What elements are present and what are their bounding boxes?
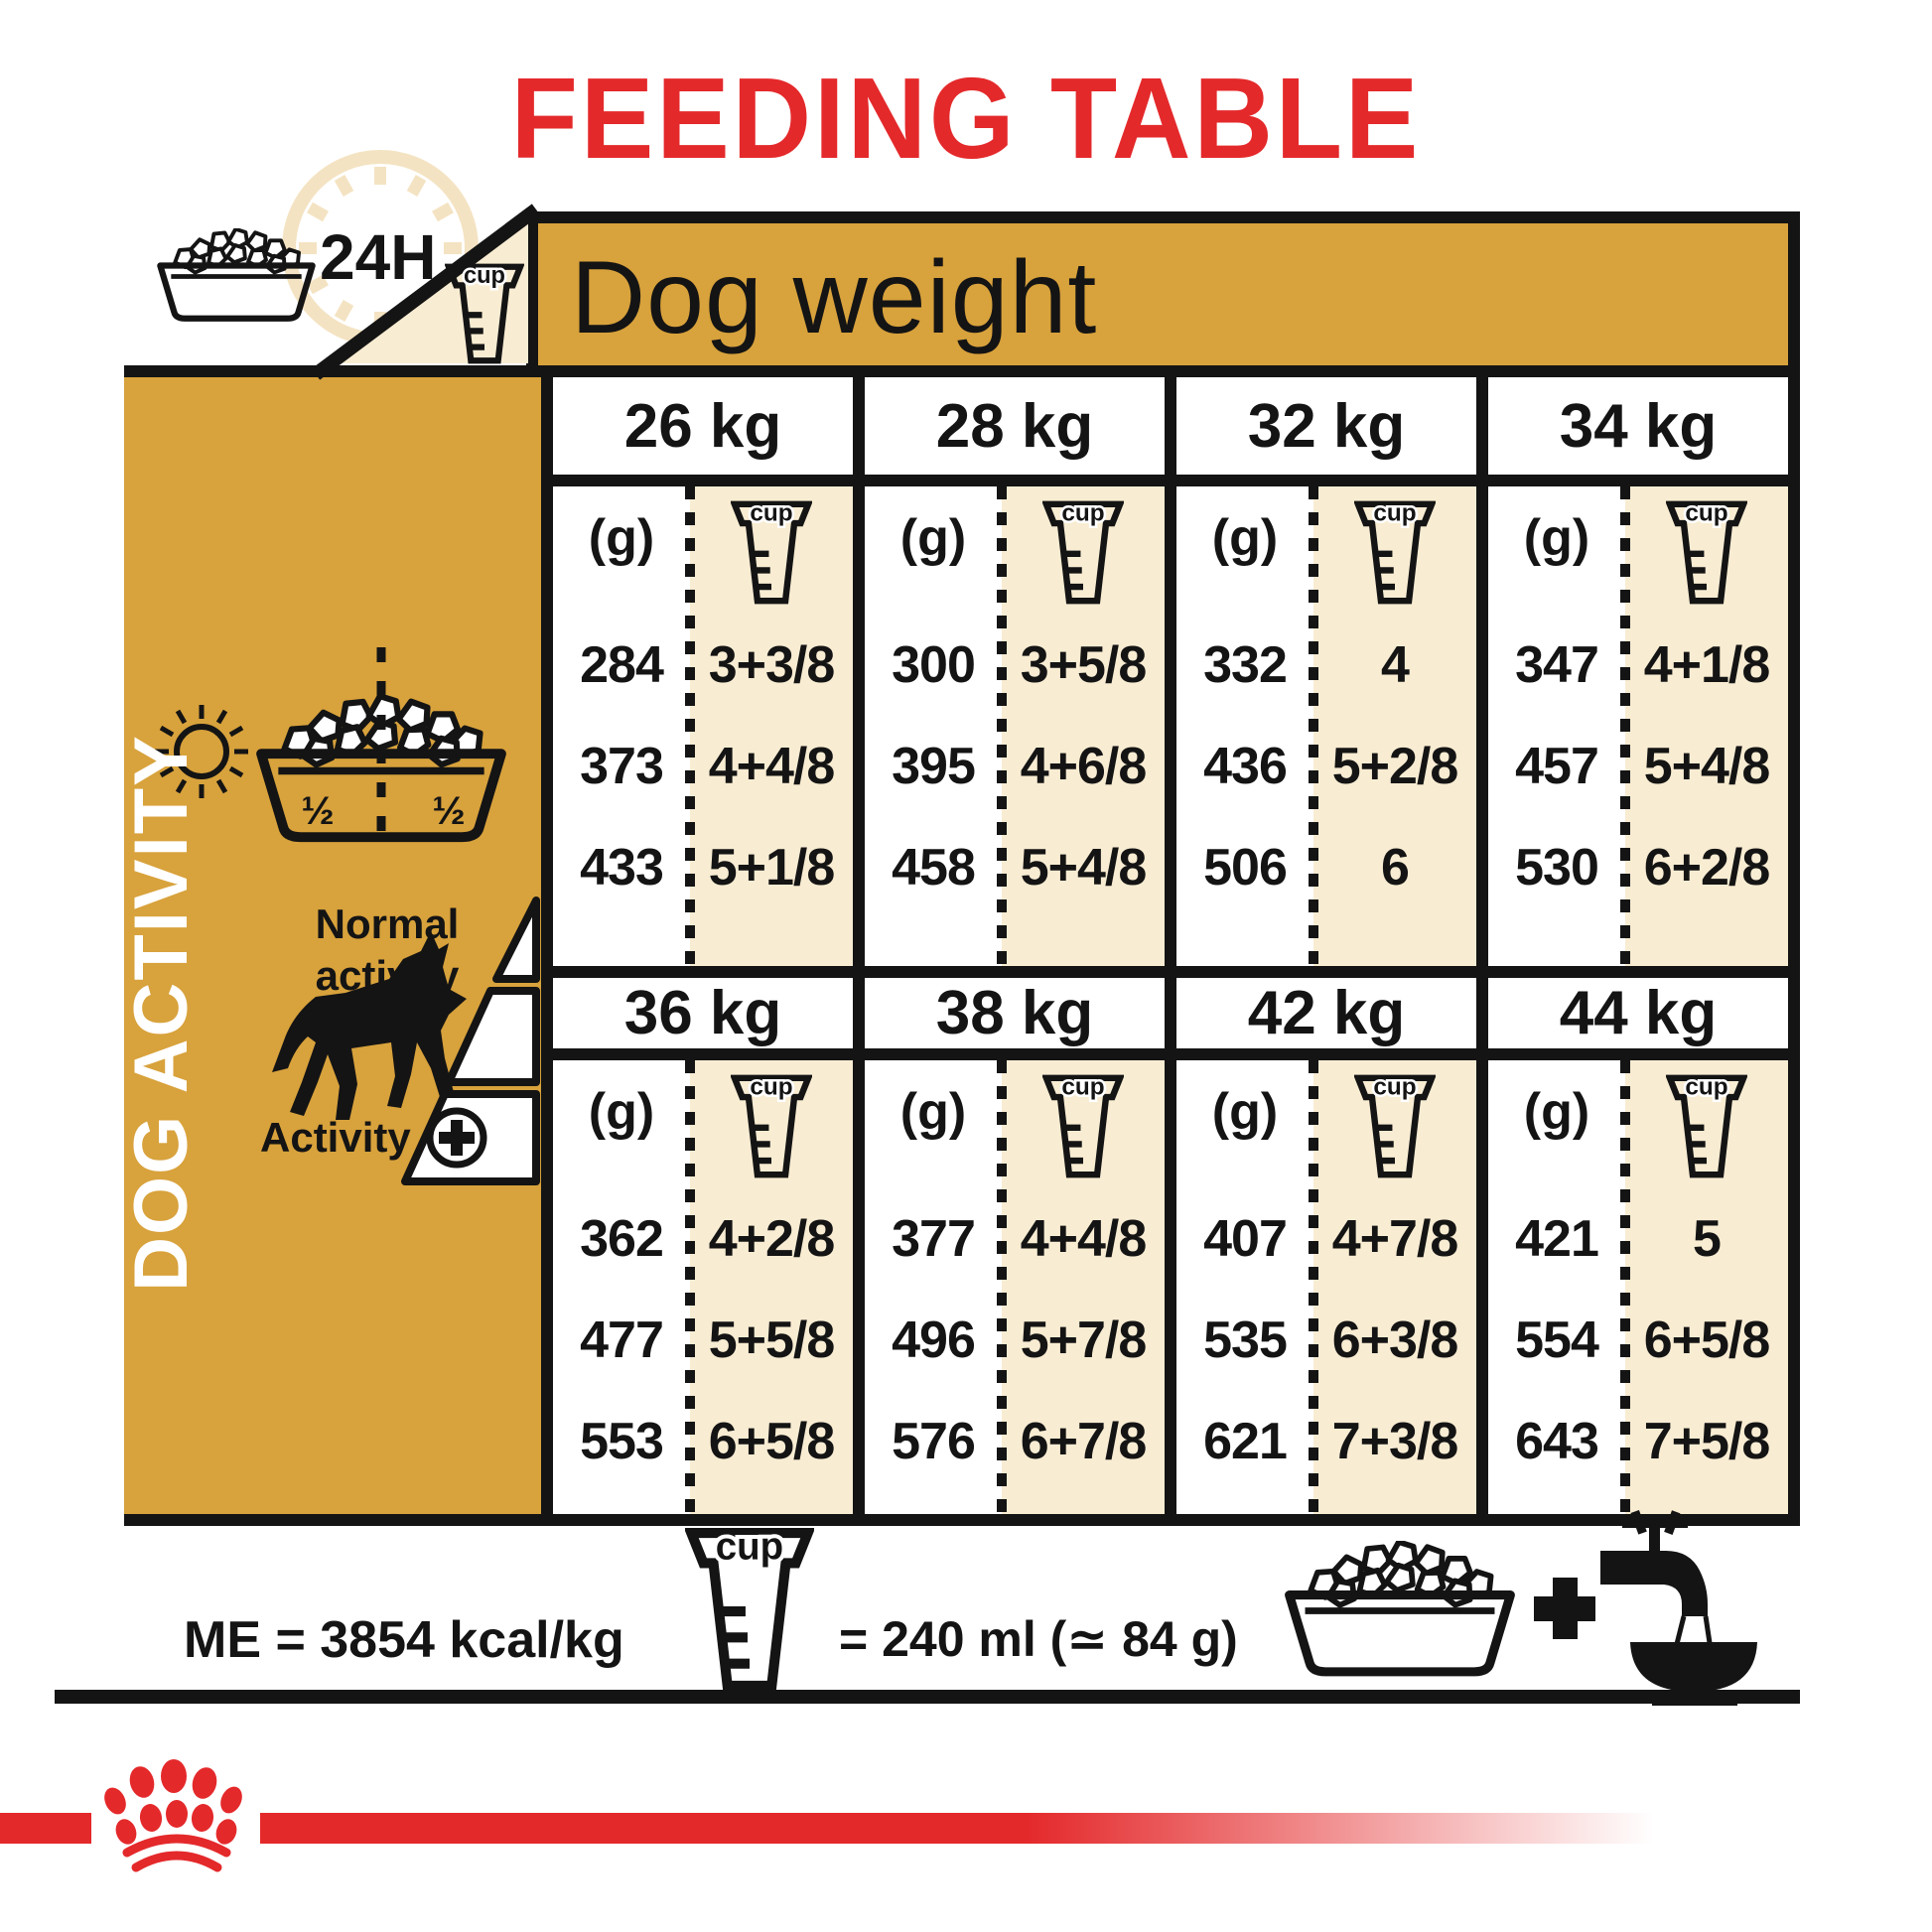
cup-icon: [1666, 500, 1747, 605]
cup-value: 3+5/8: [1002, 635, 1165, 695]
feeding-cell-32kg: (g) 332 4 436 5+2/8 506 6: [1176, 486, 1476, 966]
cup-icon: [1666, 1074, 1747, 1178]
brand-band-left: [0, 1813, 91, 1844]
feeding-cell-36kg: (g) 362 4+2/8 477 5+5/8 553 6+5/8: [553, 1060, 853, 1514]
cup-value: 5+7/8: [1002, 1311, 1165, 1370]
grams-value: 643: [1488, 1412, 1625, 1471]
weight-header-32kg: 32 kg: [1176, 377, 1476, 475]
grams-value: 300: [865, 635, 1002, 695]
cup-value: 6+3/8: [1313, 1311, 1476, 1370]
grams-value: 436: [1176, 737, 1313, 796]
half-portion-right: ½: [417, 787, 481, 835]
royal-canin-paw-logo: [100, 1759, 246, 1867]
activity-label: Activity: [260, 1110, 419, 1166]
grams-value: 621: [1176, 1412, 1313, 1471]
sidebar-bottom-border: [124, 1514, 541, 1526]
grams-value: 457: [1488, 737, 1625, 796]
grams-value: 407: [1176, 1209, 1313, 1269]
grams-value: 433: [553, 838, 690, 897]
cup-value: 5+1/8: [690, 838, 853, 897]
cup-equivalence-label: = 240 ml (≃ 84 g): [839, 1610, 1238, 1668]
grams-header: (g): [1488, 508, 1625, 568]
weight-header-26kg: 26 kg: [553, 377, 853, 475]
cup-value: 4+4/8: [1002, 1209, 1165, 1269]
cup-icon: [731, 1074, 812, 1178]
grams-value: 576: [865, 1412, 1002, 1471]
grams-value: 553: [553, 1412, 690, 1471]
feeding-cell-38kg: (g) 377 4+4/8 496 5+7/8 576 6+7/8: [865, 1060, 1165, 1514]
feeding-cell-34kg: (g) 347 4+1/8 457 5+4/8 530 6+2/8: [1488, 486, 1788, 966]
grams-value: 347: [1488, 635, 1625, 695]
grams-value: 377: [865, 1209, 1002, 1269]
cup-value: 4+2/8: [690, 1209, 853, 1269]
cup-icon-large: [691, 1525, 807, 1686]
grams-value: 496: [865, 1311, 1002, 1370]
grams-header: (g): [1176, 508, 1313, 568]
grams-value: 554: [1488, 1311, 1625, 1370]
cup-value: 7+3/8: [1313, 1412, 1476, 1471]
grams-value: 458: [865, 838, 1002, 897]
grams-header: (g): [865, 508, 1002, 568]
grams-header: (g): [1176, 1082, 1313, 1142]
feeding-cell-42kg: (g) 407 4+7/8 535 6+3/8 621 7+3/8: [1176, 1060, 1476, 1514]
grams-value: 535: [1176, 1311, 1313, 1370]
weight-header-42kg: 42 kg: [1176, 978, 1476, 1048]
cup-value: 4+6/8: [1002, 737, 1165, 796]
feeding-cell-28kg: (g) 300 3+5/8 395 4+6/8 458 5+4/8: [865, 486, 1165, 966]
feeding-cell-26kg: (g) 284 3+3/8 373 4+4/8 433 5+1/8: [553, 486, 853, 966]
grams-value: 373: [553, 737, 690, 796]
cup-icon: [731, 500, 812, 605]
cup-value: 5+2/8: [1313, 737, 1476, 796]
cup-value: 6+2/8: [1625, 838, 1788, 897]
cup-value: 5+4/8: [1625, 737, 1788, 796]
brand-band-right: [260, 1813, 1654, 1844]
cup-value: 6+7/8: [1002, 1412, 1165, 1471]
cup-value: 5: [1625, 1209, 1788, 1269]
feeding-table-page: 26 kg 28 kg 32 kg 34 kg (g) 284 3+3/8 37…: [0, 0, 1932, 1932]
weight-header-36kg: 36 kg: [553, 978, 853, 1048]
cup-value: 4+7/8: [1313, 1209, 1476, 1269]
cup-icon: [1354, 500, 1436, 605]
grams-header: (g): [1488, 1082, 1625, 1142]
cup-icon: [1042, 500, 1124, 605]
feeding-cell-44kg: (g) 421 5 554 6+5/8 643 7+5/8: [1488, 1060, 1788, 1514]
normal-activity-label: Normal activity: [243, 898, 531, 950]
food-bowl-icon-footer: [1290, 1542, 1511, 1672]
plus-icon: [1534, 1578, 1595, 1639]
cup-icon: [449, 263, 520, 360]
bottom-rule: [55, 1690, 1800, 1704]
cup-value: 6+5/8: [1625, 1311, 1788, 1370]
weight-header-38kg: 38 kg: [865, 978, 1165, 1048]
grams-header: (g): [865, 1082, 1002, 1142]
cup-value: 4: [1313, 635, 1476, 695]
dog-activity-vertical-label: DOG ACTIVITY: [122, 715, 202, 1311]
cup-value: 4+1/8: [1625, 635, 1788, 695]
metabolizable-energy-label: ME = 3854 kcal/kg: [184, 1610, 624, 1670]
cup-value: 3+3/8: [690, 635, 853, 695]
grams-value: 395: [865, 737, 1002, 796]
grams-value: 332: [1176, 635, 1313, 695]
duration-label: 24H: [320, 220, 436, 294]
cup-icon: [1042, 1074, 1124, 1178]
dog-weight-label: Dog weight: [571, 230, 1762, 365]
weight-header-28kg: 28 kg: [865, 377, 1165, 475]
weight-header-34kg: 34 kg: [1488, 377, 1788, 475]
cup-value: 5+4/8: [1002, 838, 1165, 897]
cup-value: 7+5/8: [1625, 1412, 1788, 1471]
half-portion-left: ½: [286, 787, 349, 835]
grams-value: 362: [553, 1209, 690, 1269]
cup-value: 4+4/8: [690, 737, 853, 796]
cup-icon: [1354, 1074, 1436, 1178]
weight-header-44kg: 44 kg: [1488, 978, 1788, 1048]
food-bowl-icon: [160, 229, 312, 319]
water-tap-icon: [1600, 1510, 1757, 1706]
grams-value: 421: [1488, 1209, 1625, 1269]
grams-header: (g): [553, 1082, 690, 1142]
cup-value: 6+5/8: [690, 1412, 853, 1471]
cup-value: 5+5/8: [690, 1311, 853, 1370]
grams-value: 530: [1488, 838, 1625, 897]
grams-value: 477: [553, 1311, 690, 1370]
cup-value: 6: [1313, 838, 1476, 897]
grams-header: (g): [553, 508, 690, 568]
grams-value: 506: [1176, 838, 1313, 897]
grams-value: 284: [553, 635, 690, 695]
sidebar-top-border: [124, 365, 541, 377]
page-title: FEEDING TABLE: [49, 52, 1884, 185]
